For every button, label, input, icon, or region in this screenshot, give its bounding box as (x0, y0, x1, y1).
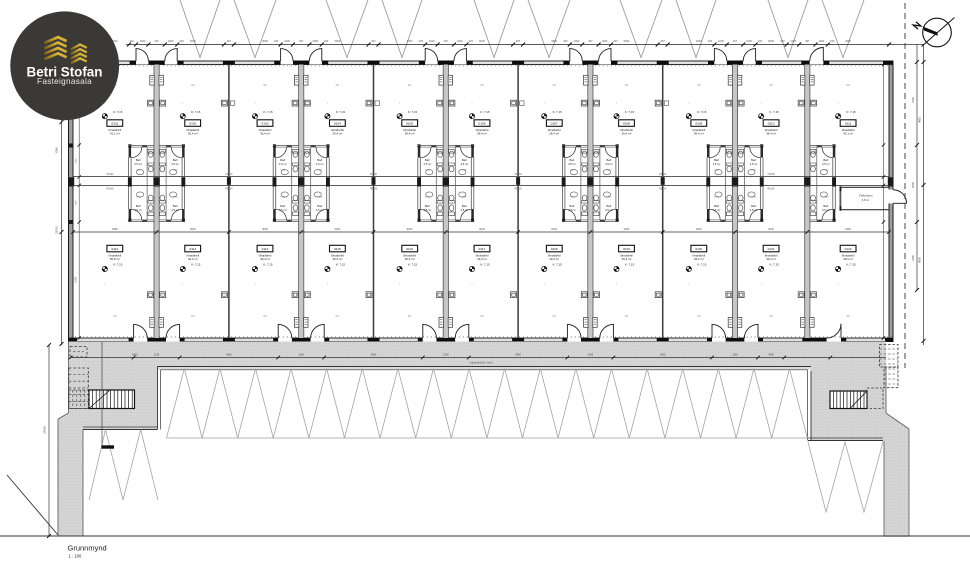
svg-text:9480: 9480 (845, 227, 851, 231)
svg-text:*: * (761, 102, 762, 106)
svg-text:333: 333 (179, 39, 184, 43)
svg-text:*: * (254, 102, 255, 106)
svg-text:333: 333 (708, 39, 713, 43)
svg-text:GN: GN (846, 85, 850, 87)
svg-text:1240: 1240 (588, 354, 594, 357)
svg-text:56,8 m²: 56,8 m² (110, 257, 120, 261)
svg-text:GN: GN (846, 316, 850, 318)
svg-text:RB180: RB180 (767, 188, 775, 191)
svg-text:967: 967 (227, 39, 232, 43)
svg-text:FB180: FB180 (768, 173, 776, 176)
svg-text:0112: 0112 (111, 247, 118, 251)
svg-text:1780: 1780 (569, 196, 575, 198)
svg-text:K: 7,15: K: 7,15 (697, 110, 707, 114)
svg-text:9480: 9480 (112, 227, 118, 231)
svg-text:4,5 m²: 4,5 m² (605, 208, 613, 212)
svg-text:GN: GN (552, 85, 556, 87)
svg-text:1 : 100: 1 : 100 (69, 554, 82, 559)
svg-text:36,4 m²: 36,4 m² (188, 132, 198, 136)
svg-text:36,4 m²: 36,4 m² (405, 132, 415, 136)
svg-text:467: 467 (299, 39, 304, 43)
svg-text:0122: 0122 (845, 247, 852, 251)
svg-text:4000: 4000 (768, 354, 774, 357)
svg-text:6,8 m²: 6,8 m² (862, 198, 870, 202)
svg-text:9000: 9000 (551, 227, 557, 231)
svg-text:*: * (688, 282, 689, 286)
svg-text:4,5 m²: 4,5 m² (460, 208, 468, 212)
svg-text:GN: GN (625, 85, 629, 87)
svg-text:1780: 1780 (714, 169, 720, 171)
svg-text:467: 467 (154, 39, 159, 43)
svg-text:4,5 m²: 4,5 m² (460, 162, 468, 166)
svg-text:4,5 m²: 4,5 m² (279, 162, 287, 166)
svg-text:49,4 m²: 49,4 m² (260, 257, 270, 261)
svg-text:K: 7,15: K: 7,15 (336, 110, 346, 114)
svg-text:0104: 0104 (334, 121, 341, 125)
svg-text:36,4 m²: 36,4 m² (260, 132, 270, 136)
svg-text:1780: 1780 (751, 196, 757, 198)
svg-text:467: 467 (805, 39, 810, 43)
svg-text:1780: 1780 (462, 169, 468, 171)
svg-text:RB180: RB180 (514, 188, 522, 191)
svg-text:49,4 m²: 49,4 m² (622, 257, 632, 261)
svg-text:49,4 m²: 49,4 m² (188, 257, 198, 261)
svg-text:6000: 6000 (190, 39, 196, 43)
svg-text:GN: GN (263, 316, 267, 318)
svg-text:4,5 m²: 4,5 m² (605, 162, 613, 166)
svg-text:1000: 1000 (718, 39, 724, 43)
svg-text:4,5 m²: 4,5 m² (713, 208, 721, 212)
svg-text:K: 7,15: K: 7,15 (770, 263, 780, 267)
svg-text:0113: 0113 (189, 247, 196, 251)
svg-text:42,1 m²: 42,1 m² (843, 132, 853, 136)
svg-text:36,4 m²: 36,4 m² (622, 132, 632, 136)
svg-text:K: 7,15: K: 7,15 (113, 110, 123, 114)
svg-text:GN: GN (480, 85, 484, 87)
svg-text:11500: 11500 (75, 276, 78, 283)
svg-text:1000: 1000 (429, 39, 435, 43)
svg-text:333: 333 (613, 39, 618, 43)
svg-text:0120: 0120 (695, 247, 702, 251)
svg-text:967: 967 (661, 39, 666, 43)
svg-text:1000: 1000 (168, 39, 174, 43)
svg-text:6360: 6360 (55, 147, 59, 153)
svg-text:GN: GN (408, 85, 412, 87)
svg-text:0116: 0116 (406, 247, 413, 251)
svg-text:1780: 1780 (425, 169, 431, 171)
svg-text:GN: GN (697, 316, 701, 318)
svg-text:1780: 1780 (280, 196, 286, 198)
svg-text:GN: GN (336, 85, 340, 87)
svg-text:0107: 0107 (551, 121, 558, 125)
svg-text:K: 7,15: K: 7,15 (336, 263, 346, 267)
svg-text:9000: 9000 (190, 227, 196, 231)
svg-text:4881: 4881 (918, 117, 922, 123)
svg-text:3000: 3000 (696, 39, 702, 43)
svg-text:1000: 1000 (312, 39, 318, 43)
svg-text:967: 967 (516, 39, 521, 43)
svg-text:4,5 m²: 4,5 m² (279, 208, 287, 212)
svg-text:1780: 1780 (317, 196, 323, 198)
svg-text:9000: 9000 (262, 227, 268, 231)
svg-text:1780: 1780 (173, 196, 179, 198)
svg-text:1780: 1780 (714, 196, 720, 198)
svg-text:4,5 m²: 4,5 m² (750, 208, 758, 212)
svg-text:Fasteignasala: Fasteignasala (37, 77, 92, 86)
svg-text:0103: 0103 (262, 121, 269, 125)
svg-text:333: 333 (780, 39, 785, 43)
svg-text:0110: 0110 (768, 121, 775, 125)
svg-text:49,4 m²: 49,4 m² (477, 257, 487, 261)
svg-text:1240: 1240 (154, 354, 160, 357)
svg-text:*: * (471, 102, 472, 106)
svg-text:0109: 0109 (695, 121, 702, 125)
svg-text:1780: 1780 (823, 169, 829, 171)
svg-text:0117: 0117 (479, 247, 486, 251)
svg-text:6000: 6000 (335, 39, 341, 43)
svg-text:*: * (327, 102, 328, 106)
svg-text:2160: 2160 (911, 255, 915, 261)
svg-text:1780: 1780 (173, 169, 179, 171)
svg-text:333: 333 (469, 39, 474, 43)
svg-text:4,5 m²: 4,5 m² (423, 162, 431, 166)
svg-text:6000: 6000 (479, 39, 485, 43)
svg-text:9000: 9000 (479, 227, 485, 231)
svg-text:4000: 4000 (132, 354, 138, 357)
svg-text:FB180: FB180 (515, 173, 523, 176)
svg-text:4,5 m²: 4,5 m² (134, 162, 142, 166)
svg-text:9000: 9000 (335, 227, 341, 231)
svg-text:1240: 1240 (299, 354, 305, 357)
svg-text:4,5 m²: 4,5 m² (171, 208, 179, 212)
svg-text:*: * (327, 282, 328, 286)
svg-text:GN: GN (769, 85, 773, 87)
svg-text:K: 7,15: K: 7,15 (263, 110, 273, 114)
svg-text:GN: GN (191, 316, 195, 318)
svg-text:1780: 1780 (425, 196, 431, 198)
svg-text:GN: GN (769, 316, 773, 318)
svg-text:0111: 0111 (845, 121, 852, 125)
svg-text:4,5 m²: 4,5 m² (316, 162, 324, 166)
svg-text:4,5 m²: 4,5 m² (568, 208, 576, 212)
svg-text:GN: GN (697, 85, 701, 87)
svg-text:1240: 1240 (732, 354, 738, 357)
svg-text:1000: 1000 (284, 39, 290, 43)
svg-text:467: 467 (588, 39, 593, 43)
svg-text:1780: 1780 (76, 200, 78, 206)
svg-text:14000: 14000 (43, 426, 47, 434)
svg-text:3000: 3000 (551, 39, 557, 43)
svg-text:9000: 9000 (768, 227, 774, 231)
svg-text:467: 467 (444, 39, 449, 43)
svg-text:333: 333 (274, 39, 279, 43)
svg-text:1780: 1780 (569, 169, 575, 171)
svg-text:1780: 1780 (136, 169, 142, 171)
svg-text:K: 7,15: K: 7,15 (847, 263, 857, 267)
svg-text:*: * (471, 282, 472, 286)
svg-text:1780: 1780 (76, 158, 78, 164)
svg-text:4000: 4000 (515, 354, 521, 357)
svg-text:2102: 2102 (911, 97, 915, 103)
svg-text:K: 7,15: K: 7,15 (191, 263, 201, 267)
svg-text:1240: 1240 (443, 354, 449, 357)
svg-text:4,5 m²: 4,5 m² (750, 162, 758, 166)
svg-text:FB180: FB180 (659, 173, 667, 176)
svg-text:GN: GN (336, 316, 340, 318)
svg-text:snjóbræðsla í stétt: snjóbræðsla í stétt (470, 360, 493, 365)
svg-text:4,5 m²: 4,5 m² (171, 162, 179, 166)
svg-text:4,5 m²: 4,5 m² (822, 208, 830, 212)
svg-text:467: 467 (733, 39, 738, 43)
svg-text:*: * (838, 102, 839, 106)
svg-text:49,4 m²: 49,4 m² (766, 257, 776, 261)
svg-text:42,1 m²: 42,1 m² (110, 132, 120, 136)
svg-text:K: 7,15: K: 7,15 (625, 110, 635, 114)
svg-text:1780: 1780 (606, 196, 612, 198)
svg-text:*: * (761, 282, 762, 286)
svg-text:1000: 1000 (818, 39, 824, 43)
svg-text:36,4 m²: 36,4 m² (477, 132, 487, 136)
svg-text:K: 7,15: K: 7,15 (847, 110, 857, 114)
svg-text:1780: 1780 (317, 169, 323, 171)
svg-text:0106: 0106 (479, 121, 486, 125)
svg-text:1780: 1780 (751, 169, 757, 171)
svg-text:6000: 6000 (624, 39, 630, 43)
svg-text:Grunnmynd: Grunnmynd (68, 544, 107, 553)
svg-text:GN: GN (113, 316, 117, 318)
svg-text:3000: 3000 (845, 39, 851, 43)
svg-text:1780: 1780 (823, 196, 829, 198)
svg-text:*: * (182, 282, 183, 286)
svg-text:9000: 9000 (407, 227, 413, 231)
svg-text:GN: GN (263, 85, 267, 87)
svg-text:RB180: RB180 (106, 188, 114, 191)
svg-text:GN: GN (191, 85, 195, 87)
svg-text:*: * (616, 282, 617, 286)
svg-text:K: 7,15: K: 7,15 (191, 110, 201, 114)
svg-text:6000: 6000 (768, 39, 774, 43)
svg-text:4,5 m²: 4,5 m² (568, 162, 576, 166)
svg-text:1000: 1000 (790, 39, 796, 43)
svg-text:K: 7,15: K: 7,15 (770, 110, 780, 114)
svg-text:4,5 m²: 4,5 m² (316, 208, 324, 212)
svg-text:9000: 9000 (696, 227, 702, 231)
svg-text:49,4 m²: 49,4 m² (332, 257, 342, 261)
svg-text:*: * (399, 282, 400, 286)
svg-text:49,4 m²: 49,4 m² (694, 257, 704, 261)
svg-text:*: * (182, 102, 183, 106)
svg-text:1000: 1000 (602, 39, 608, 43)
svg-text:23010: 23010 (55, 226, 59, 234)
svg-text:9000: 9000 (624, 227, 630, 231)
svg-text:*: * (838, 282, 839, 286)
svg-text:K: 7,15: K: 7,15 (263, 263, 273, 267)
svg-text:1780: 1780 (280, 169, 286, 171)
svg-text:*: * (104, 282, 105, 286)
svg-text:4,5 m²: 4,5 m² (713, 162, 721, 166)
svg-text:0121: 0121 (768, 247, 775, 251)
svg-text:0119: 0119 (623, 247, 630, 251)
svg-text:*: * (688, 102, 689, 106)
svg-text:K: 7,15: K: 7,15 (480, 110, 490, 114)
svg-text:K: 7,15: K: 7,15 (553, 263, 563, 267)
svg-text:*: * (254, 282, 255, 286)
svg-text:K: 7,15: K: 7,15 (480, 263, 490, 267)
svg-text:0108: 0108 (623, 121, 630, 125)
svg-text:36,4 m²: 36,4 m² (694, 132, 704, 136)
svg-text:0115: 0115 (334, 247, 341, 251)
svg-text:0105: 0105 (406, 121, 413, 125)
svg-text:4,5 m²: 4,5 m² (423, 208, 431, 212)
svg-text:FB180: FB180 (225, 173, 233, 176)
svg-text:967: 967 (371, 39, 376, 43)
svg-text:333: 333 (563, 39, 568, 43)
svg-text:333: 333 (419, 39, 424, 43)
svg-text:*: * (616, 102, 617, 106)
svg-text:K: 7,15: K: 7,15 (408, 110, 418, 114)
svg-text:333: 333 (129, 39, 134, 43)
svg-text:GN: GN (552, 316, 556, 318)
svg-text:0102: 0102 (189, 121, 196, 125)
svg-text:3000: 3000 (407, 39, 413, 43)
svg-text:0114: 0114 (262, 247, 269, 251)
svg-text:RB180: RB180 (225, 188, 233, 191)
svg-text:RB180: RB180 (659, 188, 667, 191)
svg-text:K: 7,15: K: 7,15 (408, 263, 418, 267)
svg-text:4000: 4000 (226, 354, 232, 357)
svg-text:*: * (544, 282, 545, 286)
svg-text:FB180: FB180 (370, 173, 378, 176)
svg-text:GN: GN (480, 316, 484, 318)
svg-text:1780: 1780 (606, 169, 612, 171)
svg-text:4000: 4000 (660, 354, 666, 357)
svg-text:333: 333 (830, 39, 835, 43)
svg-text:K: 7,15: K: 7,15 (113, 263, 123, 267)
svg-text:FB180: FB180 (106, 173, 114, 176)
svg-text:*: * (544, 102, 545, 106)
svg-text:49,4 m²: 49,4 m² (549, 257, 559, 261)
svg-text:GN: GN (625, 316, 629, 318)
svg-text:K: 7,15: K: 7,15 (625, 263, 635, 267)
svg-text:1000: 1000 (457, 39, 463, 43)
svg-text:36,4 m²: 36,4 m² (549, 132, 559, 136)
svg-text:1000: 1000 (574, 39, 580, 43)
svg-text:36,4 m²: 36,4 m² (332, 132, 342, 136)
svg-text:RB180: RB180 (370, 188, 378, 191)
svg-text:1780: 1780 (462, 196, 468, 198)
svg-text:5900: 5900 (911, 182, 915, 188)
svg-text:49,6 m²: 49,6 m² (843, 257, 853, 261)
svg-text:GN: GN (408, 316, 412, 318)
svg-text:1000: 1000 (746, 39, 752, 43)
svg-text:333: 333 (324, 39, 329, 43)
svg-text:8800: 8800 (918, 257, 922, 263)
svg-text:0118: 0118 (551, 247, 558, 251)
svg-text:Tæknirými: Tæknirými (859, 194, 873, 198)
svg-text:0101: 0101 (111, 121, 118, 125)
svg-text:36,4 m²: 36,4 m² (766, 132, 776, 136)
svg-text:3000: 3000 (262, 39, 268, 43)
svg-text:*: * (399, 102, 400, 106)
svg-text:K: 7,15: K: 7,15 (553, 110, 563, 114)
svg-text:1000: 1000 (140, 39, 146, 43)
svg-text:333: 333 (758, 39, 763, 43)
svg-text:4,5 m²: 4,5 m² (822, 162, 830, 166)
svg-text:4000: 4000 (371, 354, 377, 357)
svg-text:1780: 1780 (136, 196, 142, 198)
svg-text:4,5 m²: 4,5 m² (134, 208, 142, 212)
svg-text:K: 7,15: K: 7,15 (697, 263, 707, 267)
svg-text:49,4 m²: 49,4 m² (405, 257, 415, 261)
